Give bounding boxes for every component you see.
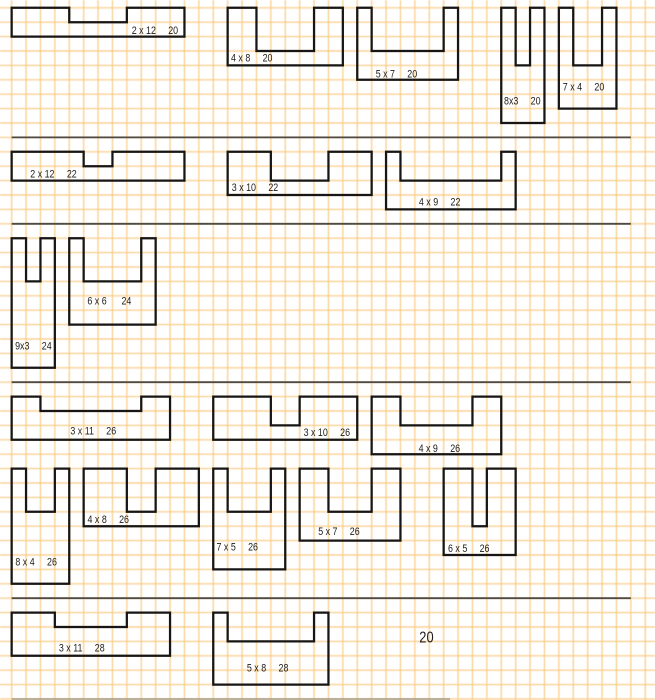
- svg-text:6 x 6 24: 6 x 6 24: [87, 296, 131, 308]
- svg-text:4 x 9 26: 4 x 9 26: [419, 443, 460, 455]
- svg-text:4 x 8 20: 4 x 8 20: [231, 53, 273, 65]
- svg-text:8 x 4 26: 8 x 4 26: [15, 557, 56, 569]
- svg-text:7 x 4 20: 7 x 4 20: [563, 82, 605, 94]
- svg-text:3 x 11 26: 3 x 11 26: [70, 426, 116, 438]
- svg-text:5 x 7 26: 5 x 7 26: [318, 526, 359, 538]
- svg-text:3 x 10 22: 3 x 10 22: [232, 182, 278, 194]
- svg-text:4 x 8 26: 4 x 8 26: [88, 514, 129, 526]
- svg-text:4 x 9 22: 4 x 9 22: [419, 197, 460, 209]
- svg-text:8x3 20: 8x3 20: [504, 96, 541, 108]
- svg-text:6 x 5 26: 6 x 5 26: [448, 544, 489, 556]
- svg-text:3 x 11 28: 3 x 11 28: [59, 643, 105, 655]
- svg-text:2 x 12 22: 2 x 12 22: [30, 169, 76, 181]
- svg-text:5 x 7 20: 5 x 7 20: [376, 69, 418, 81]
- svg-text:2 x 12 20: 2 x 12 20: [132, 25, 179, 37]
- svg-text:5 x 8 28: 5 x 8 28: [247, 663, 288, 675]
- svg-text:20: 20: [419, 628, 433, 645]
- svg-text:7 x 5 26: 7 x 5 26: [217, 542, 258, 554]
- svg-text:3 x 10 26: 3 x 10 26: [304, 427, 350, 439]
- svg-text:9x3 24: 9x3 24: [15, 341, 52, 353]
